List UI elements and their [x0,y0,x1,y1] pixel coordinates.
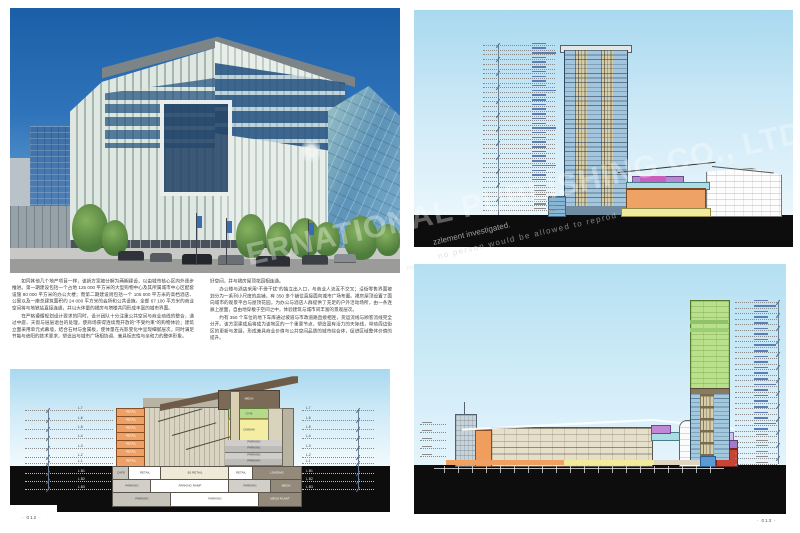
rt-level-line [483,54,555,55]
car [150,253,172,261]
level-line [25,489,113,490]
rt-level-tag [532,57,546,59]
basement-label: PARKING [229,485,271,488]
rb-pile [528,466,529,473]
rb-level-line [735,431,777,432]
rb-level-line [735,408,777,409]
retail-label: RETAIL [117,410,144,413]
rb-level-line [735,324,777,325]
basement-label: B1 RETAIL [161,472,229,475]
rt-level-line [483,139,555,140]
rt-level-tag [532,80,546,82]
rb-level-line [735,341,777,342]
level-label: L.3 [78,445,83,448]
level-label: L.6 [78,417,83,420]
rt-level-line [483,101,555,102]
rb-pile [486,466,487,473]
rt-level-line [483,167,555,168]
basement-label: CAFE [113,472,129,475]
escalator-line [158,408,202,422]
retail-label: RETAIL [117,426,144,429]
rb-pile [514,466,515,473]
rb-level-line [735,375,777,376]
basement-label: PARKING [113,498,171,501]
parking-floor: PARKING [225,459,282,466]
level-line [25,420,113,421]
rb-pile [612,466,613,473]
level-line [302,473,374,474]
rb-level-line [735,392,777,393]
level-label: L.B3 [78,486,85,489]
rt-level-line [483,50,555,51]
basement-label: PARKING RAMP [151,485,229,488]
rb-pile [710,466,711,473]
level-label: L.5 [306,426,311,429]
level-label: L.3 [306,445,311,448]
rb-level-line [735,319,777,320]
rt-level-line [483,144,555,145]
rb-level-tag [754,417,768,419]
level-line [25,448,113,449]
paragraph: 约有 350 个车位的地下车库通过坡道与市政道路直接相连，货运流线与顾客流线完全… [210,315,392,342]
parking-label: PARKING [225,453,282,456]
basement-label: LOADING [253,472,301,475]
level-label: L.4 [306,435,311,438]
level-label: L.7 [306,407,311,410]
rt-level-tag [532,66,546,68]
rb-pile [696,466,697,473]
banner-flag [227,221,232,233]
rb-pile [458,466,459,473]
rt-level-tag [532,165,556,167]
paragraph: 在严格遵循规划设计要求的同时，设计团队十分注重公共空间与商业动线的整合，通过中庭… [12,313,194,340]
rb-level-line [735,420,777,421]
rb-level-line [735,414,777,415]
retail-label: RETAIL [117,459,144,462]
car [118,251,144,260]
paragraph: 如同其他几个地产项目一样，该新方案被分解为两期建设，以由城市核心区向外逐步推进。… [12,278,194,312]
basement-label: MECH PLANT [259,498,301,501]
rt-level-line [483,134,555,135]
rt-level-line [483,83,555,84]
rb-level-tag [754,400,768,402]
rb-mini-level-line [420,456,446,457]
rt-level-line [483,106,555,107]
rb-level-tag [754,406,768,408]
rb-level-tag [754,316,768,318]
dimension-line [48,410,49,489]
rb-level-line [735,403,777,404]
rt-level-tag [532,113,546,115]
rb-level-tag [754,428,768,430]
level-label: L.B2 [78,478,85,481]
escalator-line [186,436,230,450]
rb-level-line [735,330,777,331]
rb-podium-level-tag [756,451,768,452]
rt-level-tag [532,146,546,148]
rt-level-line [483,45,555,46]
retail-label: RETAIL [117,450,144,453]
basement-cell: PARKING [112,492,172,507]
retail-label: RETAIL [117,434,144,437]
rb-level-line [735,358,777,359]
car [334,254,356,262]
level-line [25,410,113,411]
rt-level-tag [532,108,546,110]
rb-pile [640,466,641,473]
rt-level-line [483,120,555,121]
rt-level-tag [532,47,546,49]
parking-label: PARKING [225,460,282,463]
rt-level-line [483,97,555,98]
rt-level-tag [532,104,546,106]
rt-level-line [483,64,555,65]
rt-level-line [483,116,555,117]
level-label: L.5 [78,426,83,429]
rt-level-tag [532,43,546,45]
level-line [25,463,113,464]
rb-level-tag [754,333,768,335]
rb-level-line [735,347,777,348]
rt-level-tag [532,71,546,73]
car [182,254,212,264]
rt-level-line [483,148,555,149]
rb-pile [556,466,557,473]
banner-flag [197,216,202,228]
level-label: L.B3 [306,486,313,489]
rt-level-line [483,163,555,164]
rb-pile [682,466,683,473]
level-line [25,473,113,474]
rt-level-tag [532,99,546,101]
car [218,255,244,264]
rb-pile [570,466,571,473]
rt-level-tag [532,118,546,120]
rb-level-tag [754,305,776,307]
left-section-drawing: MECH GYM CINEMA L.7L.7L.6L.6L.5L.5L.4L.4… [10,369,390,512]
rb-level-line [735,302,777,303]
parking-label: PARKING [225,441,282,444]
right-bottom-drawing [414,264,786,514]
level-label: L.7 [78,407,83,410]
rb-level-tag [754,361,768,363]
level-line [302,420,374,421]
rt-level-tag [532,160,546,162]
level-line [25,457,113,458]
rt-level-tag [532,85,546,87]
rb-generated [414,264,786,514]
rb-pile [542,466,543,473]
rb-mini-level-tag [422,438,432,439]
level-line [25,429,113,430]
level-label: L.1 [78,460,83,463]
rb-pile [444,466,445,473]
rb-podium-level-line [735,442,777,443]
rt-level-tag [532,123,546,125]
rb-level-tag [754,311,768,313]
book-spread: { "spread": { "left_page_number": "· 012… [0,0,800,533]
rb-podium-level-line [735,447,777,448]
section-generated: L.7L.7L.6L.6L.5L.5L.4L.4L.3L.3L.2L.2L.1L… [10,369,390,512]
rb-level-tag [754,395,768,397]
rb-pile [584,466,585,473]
level-label: L.B2 [306,478,313,481]
rt-level-line [483,125,555,126]
rb-podium-level-tag [756,434,768,435]
rb-podium-level-line [735,436,777,437]
rb-pile [668,466,669,473]
rt-level-tag [532,127,556,129]
rb-level-tag [754,423,776,425]
paragraph: 办公楼与酒店采用“不受干扰”的独立出入口，与商业人流互不交叉；沿街零售界面被划分… [210,286,392,313]
rb-level-line [735,308,777,309]
page-number-left: · 012 · [22,516,41,521]
rb-podium-level-tag [756,462,768,463]
rt-level-tag [532,76,546,78]
rt-level-line [483,158,555,159]
basement-label: MECH [271,485,301,488]
level-label: L.2 [306,454,311,457]
rb-pile [654,466,655,473]
rb-level-tag [754,339,768,341]
rb-level-tag [754,300,768,302]
rt-level-tag [532,151,546,153]
level-line [302,438,374,439]
rb-level-tag [754,412,768,414]
retail-label: RETAIL [117,442,144,445]
level-line [302,448,374,449]
rb-level-line [735,369,777,370]
rb-level-tag [754,350,768,352]
rt-level-line [483,130,555,131]
rb-level-line [735,336,777,337]
rb-level-line [735,397,777,398]
basement-cell: PARKING [170,492,260,507]
level-line [302,410,374,411]
rt-level-tag [532,90,556,92]
rt-level-tag [532,155,546,157]
level-label: L.6 [306,417,311,420]
rb-podium-level-tag [756,445,768,446]
level-line [302,457,374,458]
rt-level-tag [532,132,546,134]
basement-label: PARKING [113,485,151,488]
parking-label: PARKING [225,447,282,450]
rb-level-line [735,386,777,387]
rt-level-line [483,111,555,112]
rb-podium-level-tag [756,456,768,457]
rb-level-line [735,425,777,426]
rb-podium-level-line [735,453,777,454]
rt-level-tag [532,94,546,96]
rb-mini-level-line [420,432,446,433]
rb-level-tag [754,384,776,386]
level-label: L.B1 [306,470,313,473]
dimension-line [358,410,359,489]
rb-level-tag [754,378,768,380]
rt-level-line [483,92,555,93]
rb-level-tag [754,372,768,374]
rb-mini-level-tag [422,430,432,431]
rb-mini-level-line [420,424,446,425]
rb-pile [598,466,599,473]
rb-podium-level-line [735,458,777,459]
basement-label: RETAIL [229,472,253,475]
level-line [302,481,374,482]
level-label: L.4 [78,435,83,438]
rb-mini-level-tag [422,446,432,447]
rb-level-tag [754,344,776,346]
basement-label: PARKING [171,498,259,501]
rt-level-tag [532,141,546,143]
rb-pile [626,466,627,473]
rt-level-line [483,87,555,88]
rt-level-tag [532,61,546,63]
rt-level-line [483,73,555,74]
rb-level-tag [754,322,768,324]
level-line [302,463,374,464]
rt-level-line [483,69,555,70]
rb-mini-level-line [420,440,446,441]
rb-level-line [735,380,777,381]
level-line [25,438,113,439]
rb-mini-level-line [420,448,446,449]
rt-level-line [483,78,555,79]
rb-podium-level-line [735,464,777,465]
rt-level-line [483,153,555,154]
paragraph: 好空间，并与裙房屋顶花园相连通。 [210,278,392,285]
article-col-2: 好空间，并与裙房屋顶花园相连通。办公楼与酒店采用“不受干扰”的独立出入口，与商业… [210,278,392,343]
rt-level-tag [532,137,546,139]
article-col-1: 如同其他几个地产项目一样，该新方案被分解为两期建设，以由城市核心区向外逐步推进。… [12,278,194,341]
rb-level-line [735,364,777,365]
rb-pile [472,466,473,473]
rb-mini-level-tag [422,422,432,423]
basement-cell: MECH PLANT [258,492,302,507]
rb-level-tag [754,389,768,391]
rt-level-line [483,59,555,60]
rb-mini-level-tag [422,454,432,455]
rt-level-tag [532,52,556,54]
rb-podium-level-tag [756,440,768,441]
article: 如同其他几个地产项目一样，该新方案被分解为两期建设，以由城市核心区向外逐步推进。… [12,278,392,368]
rb-level-tag [754,328,768,330]
page-right: · 013 · [400,0,800,533]
rb-level-tag [754,356,768,358]
rb-level-tag [754,367,768,369]
retail-label: RETAIL [117,418,144,421]
level-label: L.1 [306,460,311,463]
level-label: L.2 [78,454,83,457]
level-line [25,481,113,482]
level-line [302,429,374,430]
level-label: L.B1 [78,470,85,473]
rb-level-line [735,313,777,314]
rb-pile [500,466,501,473]
basement-label: RETAIL [129,472,161,475]
page-left: 如同其他几个地产项目一样，该新方案被分解为两期建设，以由城市核心区向外逐步推进。… [0,0,400,533]
rb-level-line [735,352,777,353]
level-line [302,489,374,490]
page-number-right: · 013 · [757,519,776,524]
escalator-line [172,422,216,436]
